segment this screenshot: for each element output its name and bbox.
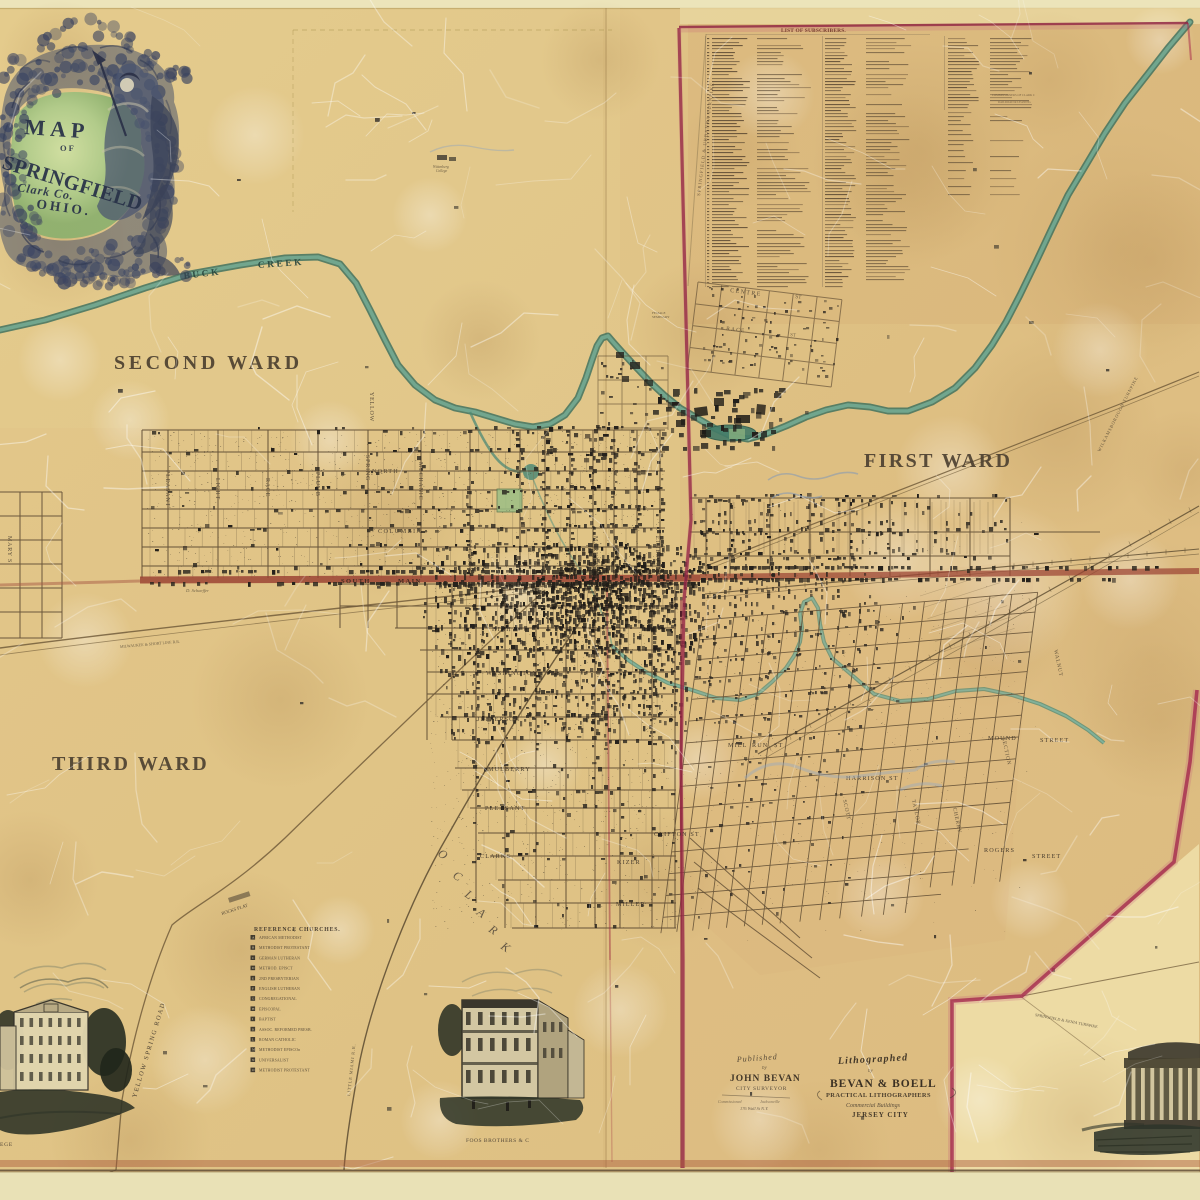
svg-text:REFERENCE: REFERENCE [254, 927, 297, 933]
svg-text:LIST OF SUBSCRIBERS.: LIST OF SUBSCRIBERS. [781, 28, 846, 34]
svg-text:Jacksonville: Jacksonville [760, 1099, 780, 1104]
svg-text:BAPTIST: BAPTIST [259, 1018, 276, 1022]
svg-text:ROGERS: ROGERS [984, 847, 1015, 854]
svg-text:PRACTICAL LITHOGRAPHERS: PRACTICAL LITHOGRAPHERS [826, 1092, 931, 1099]
svg-text:LIMESTONE: LIMESTONE [654, 536, 660, 577]
svg-text:UNIVERSALIST: UNIVERSALIST [259, 1058, 289, 1062]
svg-text:SOUTH: SOUTH [341, 578, 371, 585]
svg-text:SECOND WARD: SECOND WARD [114, 352, 303, 374]
svg-text:PLUMB: PLUMB [314, 472, 320, 497]
svg-text:JERSEY CITY: JERSEY CITY [852, 1111, 909, 1119]
svg-text:Commissioned: Commissioned [718, 1099, 743, 1104]
svg-text:RUN: RUN [752, 742, 768, 749]
svg-text:E: E [252, 976, 254, 980]
svg-text:GERMAN LUTHERAN: GERMAN LUTHERAN [259, 956, 300, 960]
svg-text:METHOD. EPISCT: METHOD. EPISCT [259, 967, 293, 971]
svg-text:METHODIST EPISCOn: METHODIST EPISCOn [259, 1048, 300, 1052]
svg-text:JOHN BEVAN: JOHN BEVAN [730, 1074, 801, 1084]
svg-text:MILLER: MILLER [616, 901, 646, 908]
svg-text:on: on [385, 579, 390, 584]
svg-text:176 Wall St N.Y.: 176 Wall St N.Y. [740, 1106, 768, 1111]
svg-text:CLIFTON ST: CLIFTON ST [654, 831, 700, 838]
svg-text:MAP: MAP [24, 114, 91, 143]
svg-text:AFRICAN METHODIST: AFRICAN METHODIST [259, 936, 303, 940]
svg-text:2ND PRESBYTERIAN: 2ND PRESBYTERIAN [259, 977, 299, 981]
svg-text:FIRST WARD: FIRST WARD [864, 450, 1012, 472]
svg-text:ST: ST [790, 333, 796, 339]
svg-text:WASHINGTON: WASHINGTON [486, 670, 538, 677]
svg-text:HIGH: HIGH [492, 626, 512, 633]
svg-text:CITY SURVEYOR: CITY SURVEYOR [736, 1086, 787, 1092]
svg-text:Commercial Buildings: Commercial Buildings [846, 1103, 901, 1109]
svg-text:MAIN: MAIN [398, 578, 422, 585]
svg-text:MECHANIC: MECHANIC [417, 462, 423, 500]
svg-text:ROMAN CATHOLIC: ROMAN CATHOLIC [259, 1038, 296, 1042]
svg-text:MILL: MILL [728, 742, 748, 749]
svg-text:College: College [436, 169, 448, 173]
svg-text:EPISCOPAL: EPISCOPAL [259, 1007, 281, 1011]
svg-text:KIZER: KIZER [617, 859, 641, 866]
svg-text:FOOS BROTHERS & C: FOOS BROTHERS & C [466, 1138, 529, 1144]
svg-text:MULBERRY: MULBERRY [488, 766, 531, 773]
svg-text:LIGHT: LIGHT [214, 478, 220, 500]
svg-text:CONGREGATIONAL: CONGREGATIONAL [259, 997, 297, 1001]
svg-text:METHODIST PROTESTANT: METHODIST PROTESTANT [259, 1069, 310, 1073]
svg-text:SPRING: SPRING [364, 455, 370, 481]
svg-text:L: L [252, 1038, 254, 1042]
svg-text:COMMISSIONERS OF CLARK C: COMMISSIONERS OF CLARK C [992, 93, 1035, 97]
svg-text:OF: OF [60, 143, 76, 153]
svg-text:CHURCHES.: CHURCHES. [299, 927, 341, 933]
svg-text:NORTH: NORTH [372, 468, 399, 475]
svg-text:BEVAN & BOELL: BEVAN & BOELL [830, 1078, 937, 1090]
svg-text:STREET: STREET [1032, 853, 1061, 860]
svg-text:RACE: RACE [264, 478, 270, 497]
svg-text:EGE: EGE [0, 1142, 13, 1148]
svg-text:MARKET: MARKET [592, 536, 598, 566]
svg-text:RAILROAD & LEANING: RAILROAD & LEANING [998, 100, 1031, 104]
svg-text:FACTORY: FACTORY [466, 540, 472, 573]
svg-text:PLEASANT: PLEASANT [164, 470, 170, 507]
svg-text:JEFFERSON: JEFFERSON [477, 716, 520, 723]
svg-text:ASSOC. REFORMED PRESB.: ASSOC. REFORMED PRESB. [259, 1028, 312, 1032]
svg-text:ST: ST [774, 742, 783, 749]
svg-text:MARY S: MARY S [6, 536, 12, 563]
svg-text:YELLOW: YELLOW [368, 392, 374, 422]
svg-text:by: by [762, 1066, 768, 1071]
svg-text:ENGLISH LUTHERAN: ENGLISH LUTHERAN [259, 987, 300, 991]
svg-text:COLUMBIA: COLUMBIA [378, 528, 422, 535]
svg-text:F: F [252, 987, 254, 991]
svg-text:D. Schaeffer: D. Schaeffer [185, 588, 209, 593]
svg-text:M: M [252, 1048, 255, 1052]
svg-text:METHODIST PROTESTANT: METHODIST PROTESTANT [259, 946, 310, 950]
